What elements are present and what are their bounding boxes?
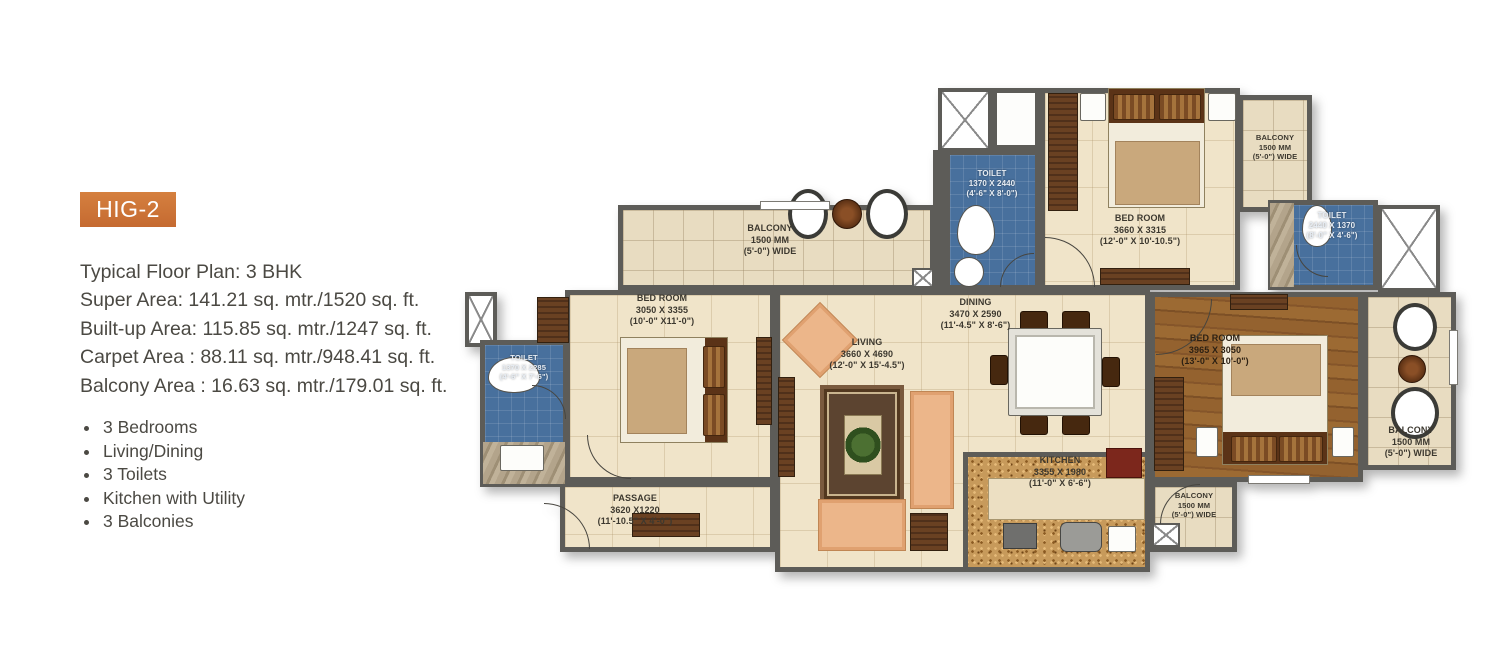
wardrobe <box>1048 93 1078 211</box>
toilet-counter <box>1270 203 1294 287</box>
label-dining: DINING3470 X 2590(11'-4.5" X 8'-6") <box>918 297 1033 332</box>
washbasin <box>954 257 984 287</box>
dining-chair <box>1062 415 1090 435</box>
label-toilet-right: TOILET2440 X 1370(8'-0" X 4'-6") <box>1292 211 1372 242</box>
window-icon <box>1449 330 1458 385</box>
window-icon <box>760 201 830 210</box>
nightstand <box>1080 93 1106 121</box>
shaft-icon <box>912 268 934 288</box>
balcony-chair <box>1393 303 1437 351</box>
dining-chair <box>990 355 1008 385</box>
balcony-chair <box>866 189 908 239</box>
feature-item: 3 Toilets <box>101 463 245 487</box>
plan-code-label: HIG-2 <box>96 196 160 223</box>
wc <box>957 205 995 255</box>
washing-machine <box>1108 526 1136 552</box>
feature-item: Kitchen with Utility <box>101 487 245 511</box>
dining-table <box>1008 328 1102 416</box>
label-living: LIVING3660 X 4690(12'-0" X 15'-4.5") <box>812 337 922 372</box>
plan-summary: Typical Floor Plan: 3 BHK Super Area: 14… <box>80 258 447 400</box>
kitchen-sink <box>1060 522 1102 552</box>
plan-code-badge: HIG-2 <box>80 192 176 227</box>
nightstand <box>1332 427 1354 457</box>
shaft-icon <box>1378 205 1440 292</box>
hob <box>1003 523 1037 549</box>
floor-plan-page: HIG-2 Typical Floor Plan: 3 BHK Super Ar… <box>0 0 1491 661</box>
dining-chair <box>1102 357 1120 387</box>
dining-chair <box>1020 415 1048 435</box>
sofa <box>818 499 906 551</box>
feature-item: 3 Bedrooms <box>101 416 245 440</box>
wardrobe <box>1154 377 1184 471</box>
side-table <box>910 513 948 551</box>
nightstand <box>1208 93 1236 121</box>
room-closet-nw <box>992 88 1040 150</box>
washbasin <box>500 445 544 471</box>
double-bed <box>620 337 728 443</box>
built-up-area: Built-up Area: 115.85 sq. mtr./1247 sq. … <box>80 315 447 343</box>
window-icon <box>1248 475 1310 484</box>
label-balcony-east: BALCONY1500 MM(5'-0") WIDE <box>1367 425 1455 460</box>
plant-icon <box>844 415 882 475</box>
feature-list: 3 Bedrooms Living/Dining 3 Toilets Kitch… <box>84 416 245 534</box>
plan-title: Typical Floor Plan: 3 BHK <box>80 258 447 286</box>
floor-plan-drawing: BED ROOM3660 X 3315(12'-0" X 10'-10.5") … <box>460 85 1460 581</box>
feature-item: 3 Balconies <box>101 510 245 534</box>
carpet-area: Carpet Area : 88.11 sq. mtr./948.41 sq. … <box>80 343 447 371</box>
super-area: Super Area: 141.21 sq. mtr./1520 sq. ft. <box>80 286 447 314</box>
balcony-table <box>1398 355 1426 383</box>
tv-unit <box>1100 268 1190 285</box>
dresser <box>756 337 772 425</box>
sofa <box>910 391 954 509</box>
label-toilet-top: TOILET1370 X 2440(4'-6" X 8'-0") <box>948 169 1036 200</box>
shaft-icon <box>1152 523 1180 547</box>
double-bed <box>1108 88 1205 208</box>
nightstand <box>1196 427 1218 457</box>
label-passage: PASSAGE3620 X1220(11'-10.5" X 4'-0") <box>565 493 705 528</box>
label-bedroom-top: BED ROOM3660 X 3315(12'-0" X 10'-10.5") <box>1055 213 1225 248</box>
label-balcony-ne: BALCONY1500 MM(5'-0") WIDE <box>1240 133 1310 162</box>
label-toilet-left: TOILET1370 X 2285(4'-6" X 7'-6") <box>482 353 566 382</box>
tv-cabinet <box>778 377 795 477</box>
dresser <box>1230 294 1288 310</box>
label-balcony-top: BALCONY1500 MM(5'-0") WIDE <box>715 223 825 258</box>
label-kitchen: KITCHEN3355 X 1980(11'-0" X 6'-6") <box>980 455 1140 490</box>
balcony-table <box>832 199 862 229</box>
balcony-area: Balcony Area : 16.63 sq. mtr./179.01 sq.… <box>80 372 447 400</box>
feature-item: Living/Dining <box>101 440 245 464</box>
label-bedroom-left: BED ROOM3050 X 3355(10'-0" X11'-0") <box>582 293 742 328</box>
shaft-icon <box>465 292 497 347</box>
shaft-icon <box>938 88 992 152</box>
area-rug <box>820 385 904 503</box>
wardrobe <box>537 297 569 343</box>
